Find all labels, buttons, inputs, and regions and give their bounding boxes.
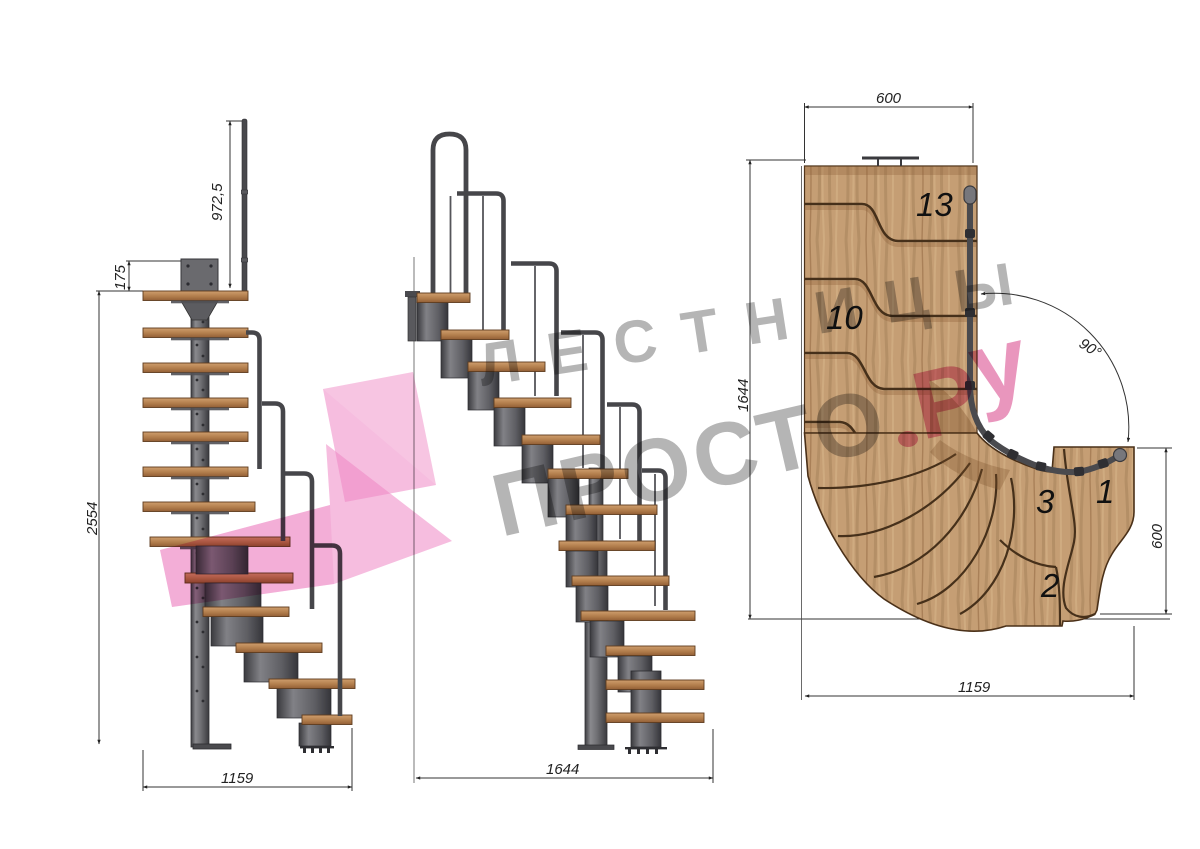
svg-text:1159: 1159 [958,679,991,696]
svg-text:1159: 1159 [221,770,254,787]
svg-text:2554: 2554 [84,502,101,536]
svg-text:175: 175 [112,264,129,290]
svg-text:13: 13 [916,186,953,223]
svg-text:600: 600 [1149,523,1166,549]
svg-text:600: 600 [876,90,902,107]
svg-text:1644: 1644 [546,761,579,778]
svg-text:972,5: 972,5 [209,183,226,221]
svg-text:2: 2 [1040,567,1059,604]
svg-text:1: 1 [1096,473,1114,510]
svg-text:3: 3 [1036,483,1055,520]
